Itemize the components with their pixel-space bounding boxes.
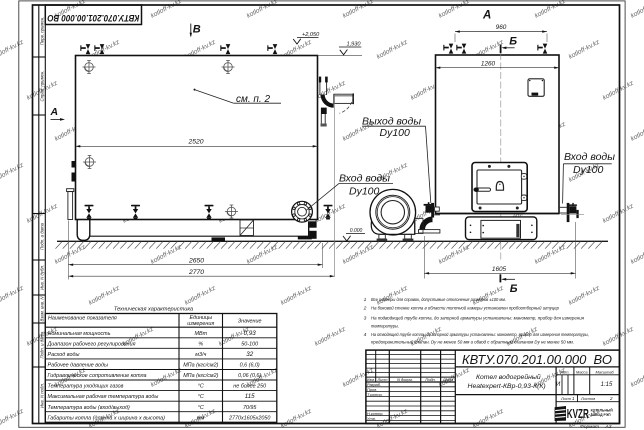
svg-text:Инв. N подл.: Инв. N подл. [40,383,45,408]
svg-text:Наименование показателя: Наименование показателя [48,316,117,322]
svg-text:Heatexpert-КВр-0,93-К(К): Heatexpert-КВр-0,93-К(К) [468,383,546,390]
svg-text:Номинальная мощность: Номинальная мощность [48,331,111,337]
svg-text:Вход воды: Вход воды [564,151,615,163]
svg-text:4: 4 [364,332,367,338]
svg-text:%: % [198,341,203,347]
svg-text:Гидравлическое сопротивление к: Гидравлическое сопротивление котла [48,373,147,379]
svg-text:N докум.: N докум. [397,377,413,382]
svg-text:1260: 1260 [481,60,496,67]
svg-text:1605: 1605 [492,266,507,273]
svg-text:Температура уходящих газов: Температура уходящих газов [48,384,124,390]
svg-text:Б: Б [510,283,518,295]
svg-text:На боковой стенке котла в обла: На боковой стенке котла в области топочн… [371,304,559,311]
svg-text:И: И [556,381,561,388]
svg-text:Б: Б [509,36,517,48]
svg-text:2: 2 [609,396,613,401]
svg-text:КВТУ.070.201.00.000 ВО: КВТУ.070.201.00.000 ВО [462,353,612,367]
svg-text:Температура воды (вход/выход): Температура воды (вход/выход) [48,405,131,411]
svg-text:2520: 2520 [187,139,203,146]
svg-text:Выход воды: Выход воды [362,115,421,127]
svg-text:+2,050: +2,050 [302,32,320,38]
svg-text:1,930: 1,930 [347,42,362,48]
svg-text:Вход воды: Вход воды [339,172,390,184]
svg-text:Подп. и дата: Подп. и дата [40,222,45,250]
svg-text:Рабочее давление воды: Рабочее давление воды [48,363,108,369]
svg-text:0.000: 0.000 [350,228,363,234]
svg-text:2770: 2770 [188,269,204,276]
svg-text:Т.контр.: Т.контр. [367,392,383,397]
svg-text:Инв. N дубл.: Инв. N дубл. [40,265,45,290]
svg-text:1:15: 1:15 [601,382,613,388]
svg-text:Взам. инв. N: Взам. инв. N [40,296,45,322]
svg-text:1: 1 [364,297,367,303]
svg-text:КВТУ.070.201.00.000 ВО: КВТУ.070.201.00.000 ВО [47,13,140,23]
svg-text:Dy100: Dy100 [573,164,604,176]
svg-text:0,06 (0,6): 0,06 (0,6) [238,373,261,379]
svg-text:А: А [482,9,491,21]
svg-text:Перв. примен.: Перв. примен. [40,17,45,46]
svg-text:0,93: 0,93 [244,330,257,337]
svg-text:°С: °С [198,405,204,411]
svg-text:Подп. и дата: Подп. и дата [40,331,45,359]
svg-text:2650: 2650 [188,257,204,264]
svg-text:Все размеры для справок, допус: Все размеры для справок, допустимые откл… [371,297,506,303]
svg-text:ЗАВОД РЭП: ЗАВОД РЭП [591,413,612,417]
svg-text:°С: °С [198,394,204,400]
svg-text:Dy100: Dy100 [349,185,380,197]
svg-text:Расход воды: Расход воды [48,352,80,358]
svg-text:КОТЕЛЬНЫЙ: КОТЕЛЬНЫЙ [591,408,614,412]
svg-text:Дата: Дата [442,377,454,382]
svg-text:Максимальная рабочая температу: Максимальная рабочая температура воды [48,394,159,400]
svg-text:Значение: Значение [238,319,262,325]
svg-text:не более 250: не более 250 [233,384,266,390]
svg-text:мм: мм [197,415,205,421]
svg-text:Лит.: Лит. [559,369,569,374]
svg-text:50-100: 50-100 [241,341,258,347]
svg-text:3: 3 [364,316,367,322]
svg-text:МВт: МВт [195,331,208,337]
svg-text:Диапазон рабочего регулировани: Диапазон рабочего регулирования [47,341,136,347]
svg-text:Изм.: Изм. [367,377,375,382]
svg-text:Масштаб: Масштаб [596,369,615,374]
svg-text:МПа (кгс/см2): МПа (кгс/см2) [183,363,218,369]
svg-text:А: А [50,106,59,118]
svg-text:Масса: Масса [576,369,588,374]
svg-text:Подп.: Подп. [425,377,435,382]
svg-text:70/95: 70/95 [243,405,257,411]
svg-text:Dy100: Dy100 [380,127,411,139]
svg-text:температуры.: температуры. [371,325,399,330]
svg-text:м3/ч: м3/ч [195,352,206,358]
svg-text:Справ. примен.: Справ. примен. [40,71,45,102]
svg-text:МПа (кгс/см2): МПа (кгс/см2) [183,373,218,379]
svg-text:Лист: Лист [376,377,388,382]
svg-text:Котел водогрейный: Котел водогрейный [476,373,541,381]
svg-text:°С: °С [198,384,204,390]
svg-text:Габариты котла (длинна х ширин: Габариты котла (длинна х ширина х высота… [48,415,166,421]
svg-text:2770х1605х2050: 2770х1605х2050 [228,415,270,421]
svg-text:2: 2 [363,305,367,311]
svg-text:Листов: Листов [580,396,595,401]
svg-text:измерения: измерения [187,321,214,327]
svg-text:Утв.: Утв. [367,416,376,421]
svg-text:предохранительный клапан. Dy н: предохранительный клапан. Dy не менее 50… [371,338,574,345]
svg-text:Формат: Формат [580,424,599,430]
svg-text:0,6 (6,0): 0,6 (6,0) [240,363,260,369]
svg-text:960: 960 [496,24,507,31]
svg-text:В: В [193,24,201,36]
svg-text:115: 115 [245,393,255,400]
svg-text:Лист: Лист [560,396,572,401]
svg-text:см. п. 2: см. п. 2 [236,94,270,105]
svg-text:На подводящей трубе котла, д: На подводящей трубе котла, до запорной а… [371,315,584,322]
svg-text:На отводящей трубе котла, до з: На отводящей трубе котла, до запорной ар… [371,331,589,338]
svg-text:KVZR: KVZR [567,406,589,421]
svg-text:32: 32 [246,351,253,358]
svg-text:А3: А3 [605,424,612,430]
svg-text:Техническая характеристика: Техническая характеристика [114,306,193,312]
